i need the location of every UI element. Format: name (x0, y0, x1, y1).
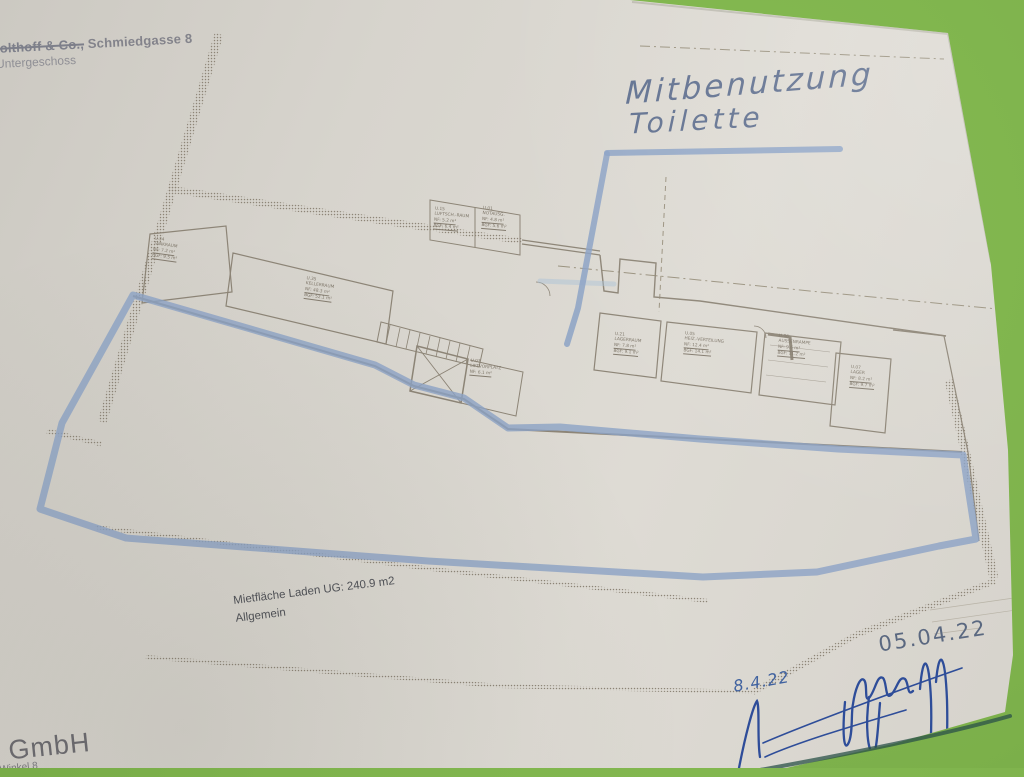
handwritten-date-small: 8.4.22 (732, 667, 791, 696)
room-label-u15: U.15LUFTSCH.-RAUM NF: 5.2 m²BGF: 6.4 m² (433, 207, 470, 233)
room-label-u07: U.07LAGER NF: 8.2 m²BGF: 9.7 m² (849, 365, 876, 391)
hatched-boundary-walls (47, 34, 995, 692)
drawing-title: Kolthoff & Co., Schmiedgasse 8 (0, 31, 193, 57)
room-label-u06: U.06AUSSENRAMPE NF: 9.6 m²BGF: 11.2 m² (777, 334, 811, 360)
rental-area-note: Mietfläche Laden UG: 240.9 m2 Allgemein (232, 573, 398, 628)
room-label-u35: U.35KELLERRAUM NF: 48.3 m²BGF: 52.1 m² (304, 276, 336, 303)
photo-of-floor-plan-document: { "header": { "company_struck": "Kolthof… (0, 0, 1024, 768)
highlighter-toilette-underline (607, 149, 840, 153)
handwritten-note-line2: Toilette (629, 100, 764, 140)
room-label-u05: U.05HEIZ.-VERTEILUNG NF: 12.4 m²BGF: 14.… (683, 331, 725, 358)
highlighter-wall-segment (540, 281, 614, 284)
room-label-u03: U.03LIFTVORPLATZ NF: 6.1 m² (469, 359, 502, 379)
floor-label: Untergeschoss (0, 53, 76, 71)
title-block: f GmbH Winkel 8 (0, 728, 93, 777)
handwritten-date-top: 05.04.22 (877, 616, 989, 657)
paper-sheet: Kolthoff & Co., Schmiedgasse 8 Untergesc… (0, 0, 1024, 768)
room-label-u01: U.01NOTAUSG. NF: 4.8 m²BGF: 5.6 m² (481, 206, 508, 232)
highlighter-toilette-path (567, 154, 607, 344)
header-address: Schmiedgasse 8 (87, 31, 192, 51)
highlighter-rental-area-outline (40, 149, 976, 577)
room-label-u34: U.34TANKRAUM NF: 7.2 m²BGF: 9.5 m² (151, 236, 179, 263)
room-label-u21: U.21LAGERRAUM NF: 7.8 m²BGF: 9.1 m² (613, 332, 642, 358)
